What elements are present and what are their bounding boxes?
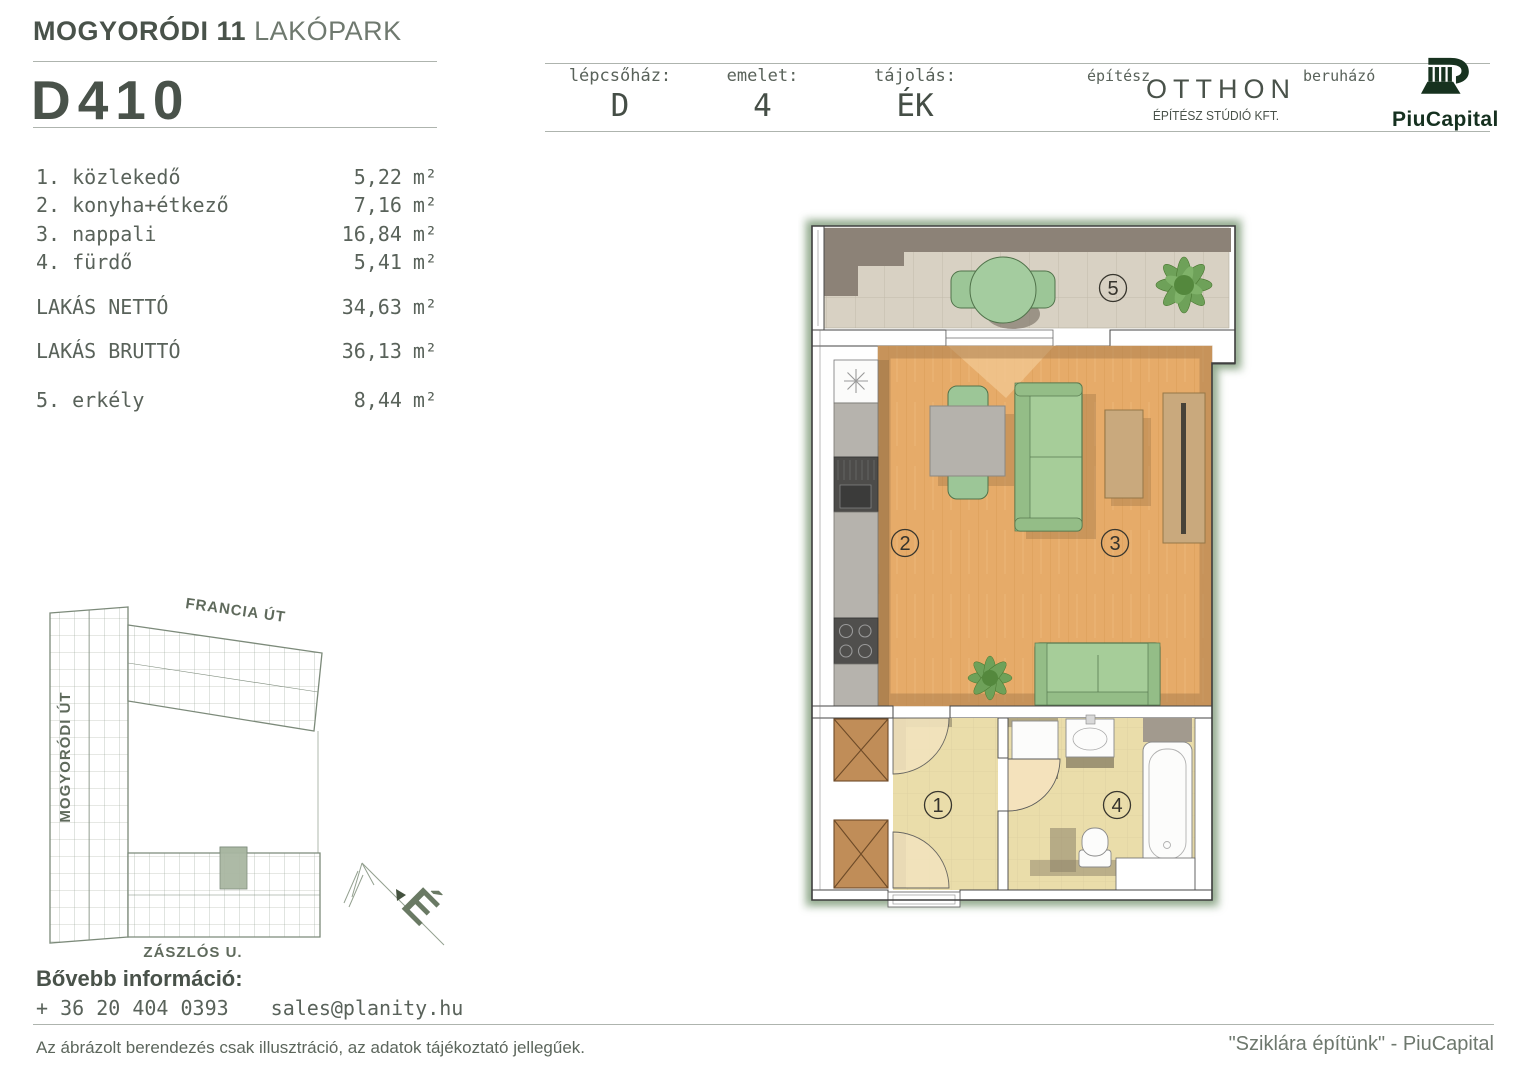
living-plant [968,656,1012,700]
site-plan: FRANCIA ÚT MOGYORÓDI ÚT ZÁSZLÓS U. É [30,585,460,970]
divider [545,131,1490,132]
field-staircase-value: D [545,88,695,124]
architect-label: építész [1087,67,1150,85]
architect-logo: OTTHON ÉPÍTÉSZ STÚDIÓ KFT. [1146,74,1286,123]
field-orientation-value: ÉK [840,88,990,124]
cooktop [834,618,878,664]
kitchen-counter [834,360,889,706]
bath-number: 4 [1111,795,1122,817]
exterior-wall [960,890,1212,900]
interior-wall [812,706,893,718]
total-net-row: LAKÁS NETTÓ34,63m² [36,293,437,321]
balcony: 5 [812,226,1231,330]
room-row: 1. közlekedő5,22m² [36,163,437,191]
kitchen-number: 2 [899,533,910,555]
living-number: 3 [1109,533,1120,555]
disclaimer-text: Az ábrázolt berendezés csak illusztráció… [36,1038,585,1058]
field-floor-value: 4 [690,88,835,124]
contact-email: sales@planity.hu [271,996,464,1020]
compass-north-label: É [393,878,449,934]
exterior-wall [812,890,888,900]
architect-logo-sub: ÉPÍTÉSZ STÚDIÓ KFT. [1152,108,1281,123]
balcony-plant [1156,257,1212,313]
architect-logo-name: OTTHON [1146,74,1286,105]
field-floor: emelet: 4 [690,66,835,124]
project-title-light: LAKÓPARK [254,16,402,46]
divider [545,63,1490,64]
project-title-bold: MOGYORÓDI 11 [33,16,246,46]
site-buildings [50,607,322,943]
room-row: 3. nappali16,84m² [36,220,437,248]
slogan-text: "Sziklára építünk" - PiuCapital [1229,1033,1494,1056]
balcony-row: 5. erkély8,44m² [36,386,437,414]
developer-logo-name: PiuCapital [1392,108,1496,132]
room-row: 2. konyha+étkező7,16m² [36,191,437,219]
contact-row: + 36 20 404 0393 sales@planity.hu [36,996,463,1020]
faucet [1086,715,1095,724]
interior-wall [998,718,1008,758]
loveseat [1035,643,1160,705]
floor-plan: 5 [798,200,1258,925]
interior-wall [950,706,1212,718]
contact-heading: Bővebb információ: [36,966,243,992]
street-label-left: MOGYORÓDI ÚT [56,691,74,822]
project-title: MOGYORÓDI 11LAKÓPARK [33,16,402,47]
street-label-top: FRANCIA ÚT [184,594,287,626]
field-staircase-label: lépcsőház: [545,66,695,86]
dining-table [930,406,1005,476]
total-gross-row: LAKÁS BRUTTÓ36,13m² [36,337,437,365]
balcony-number: 5 [1107,278,1118,300]
sofa [1015,383,1096,539]
hall-number: 1 [932,795,943,817]
field-orientation-label: tájolás: [840,66,990,86]
north-arrow-icon: É [344,863,449,945]
developer-label: beruházó [1303,67,1375,85]
field-staircase: lépcsőház: D [545,66,695,124]
bathtub [1143,742,1192,866]
field-floor-label: emelet: [690,66,835,86]
field-orientation: tájolás: ÉK [840,66,990,124]
coffee-table [1105,410,1151,506]
street-label-bottom: ZÁSZLÓS U. [143,943,242,961]
floorplan-sheet: MOGYORÓDI 11LAKÓPARK D410 lépcsőház: D e… [0,0,1527,1080]
column-icon [1414,56,1474,102]
room-row: 4. fürdő5,41m² [36,248,437,276]
divider [33,61,437,62]
unit-code: D410 [31,68,190,132]
balcony-table [970,257,1036,323]
room-list: 1. közlekedő5,22m² 2. konyha+étkező7,16m… [36,163,437,415]
contact-phone: + 36 20 404 0393 [36,996,229,1020]
interior-wall [998,811,1008,890]
divider [33,127,437,128]
divider [33,1024,1494,1025]
sink-symbol-icon [844,369,868,393]
developer-logo: PiuCapital [1392,56,1496,132]
tv-console [1163,393,1205,543]
